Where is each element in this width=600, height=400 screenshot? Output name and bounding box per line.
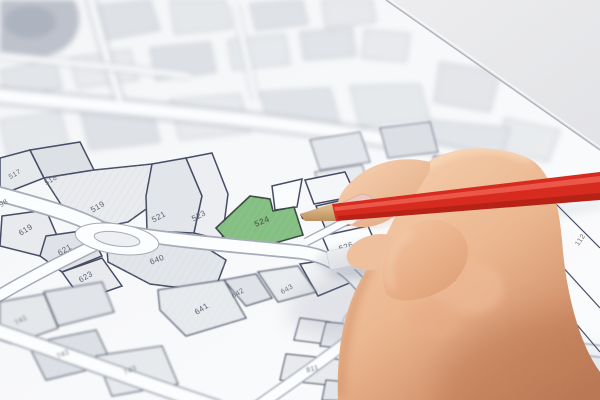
photo-cadastre-scene: 517 518 519 521 523 524 526 598 619 621 … bbox=[0, 0, 600, 400]
